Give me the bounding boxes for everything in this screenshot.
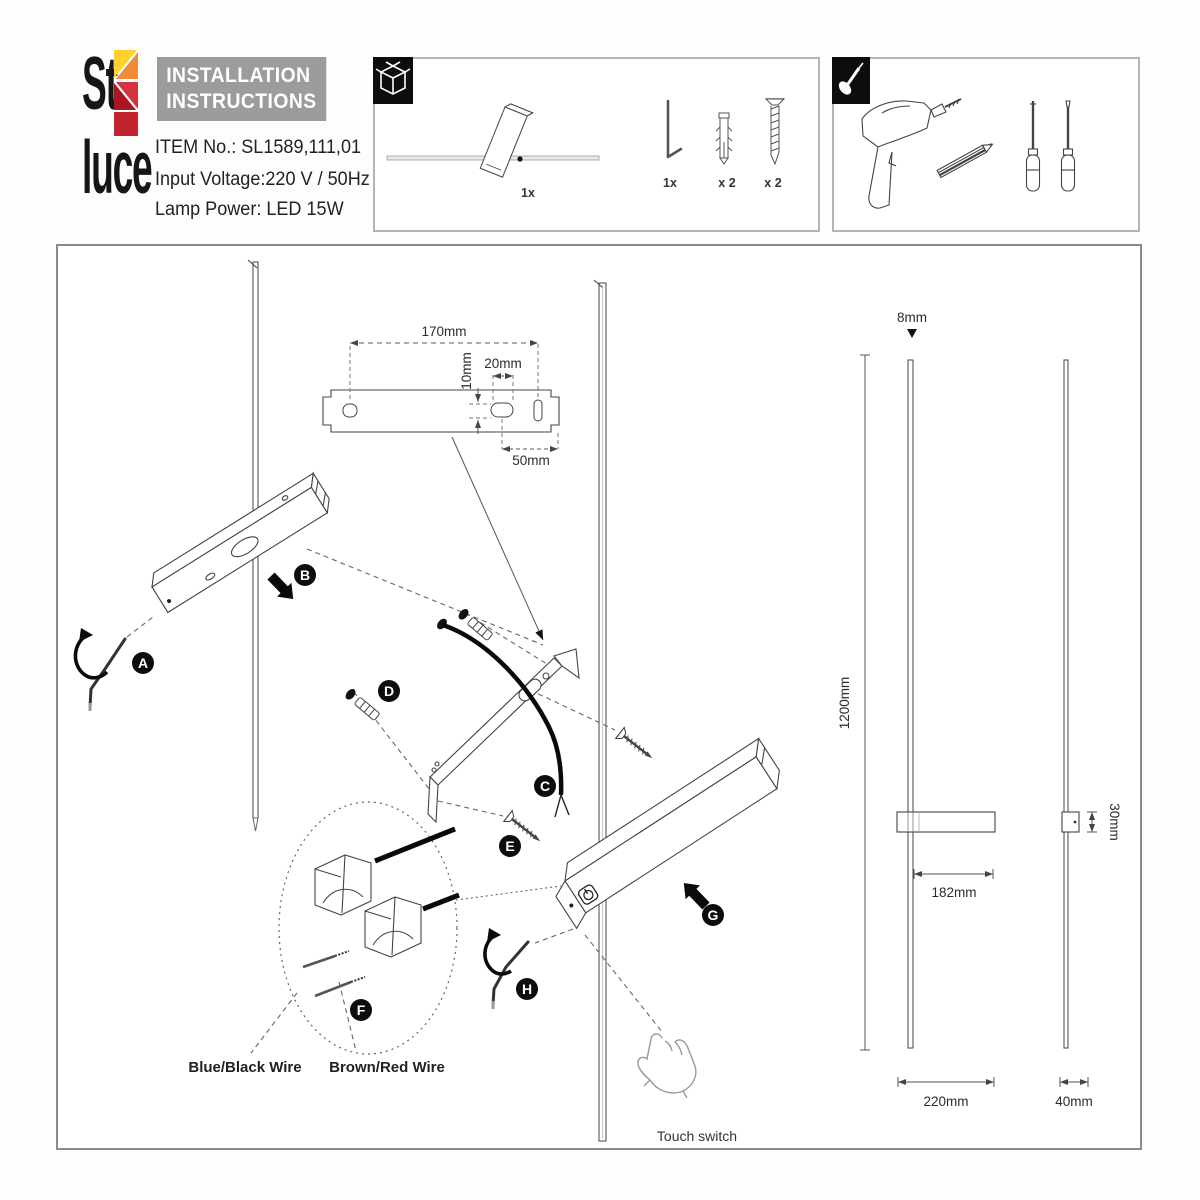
lamp-drawing: 1x xyxy=(387,102,599,200)
wall-plug-d2 xyxy=(344,687,382,721)
svg-text:H: H xyxy=(522,981,532,997)
base-width-label: 220mm xyxy=(923,1094,968,1109)
step-label-f: F xyxy=(350,999,372,1021)
lamp-power: Lamp Power: LED 15W xyxy=(155,199,344,221)
housing-step-gh: G H Touch switch xyxy=(485,739,791,1144)
allen-key-drawing: 1x xyxy=(663,101,681,190)
lamp-rod-center xyxy=(594,280,606,1141)
document-title: INSTALLATION INSTRUCTIONS xyxy=(157,57,326,121)
wall-plug-qty: x 2 xyxy=(718,176,735,190)
brand-logo-triangles-icon xyxy=(114,50,138,138)
arm-length-label: 182mm xyxy=(931,885,976,900)
package-contents-drawing: 1x 1x x 2 x 2 xyxy=(373,57,816,228)
step-label-b: B xyxy=(294,564,316,586)
drill-drawing xyxy=(862,99,961,208)
step-label-c: C xyxy=(534,775,556,797)
connector-block-1 xyxy=(315,855,371,915)
phillips-screwdriver-drawing xyxy=(1027,101,1040,191)
svg-text:F: F xyxy=(357,1002,366,1018)
svg-text:D: D xyxy=(384,683,394,699)
template-hole-height-label: 10mm xyxy=(459,352,474,390)
title-line-1: INSTALLATION xyxy=(166,63,316,89)
step-label-h: H xyxy=(516,978,538,1000)
dimension-views: 1200mm 8mm 182mm 220mm 30mm 40mm xyxy=(837,310,1122,1109)
tools-drawing xyxy=(832,57,1136,228)
template-end-offset-label: 50mm xyxy=(512,453,550,468)
step-label-d: D xyxy=(378,680,400,702)
input-wires xyxy=(303,951,365,996)
brown-red-wire-label: Brown/Red Wire xyxy=(329,1059,445,1076)
item-number: ITEM No.: SL1589,111,01 xyxy=(155,137,361,159)
touch-switch-label: Touch switch xyxy=(657,1128,737,1144)
lamp-qty: 1x xyxy=(521,186,535,200)
bracket-step-cde: D E C xyxy=(344,607,657,857)
title-line-2: INSTRUCTIONS xyxy=(166,89,316,115)
side-width-label: 40mm xyxy=(1055,1094,1093,1109)
pencil-drawing xyxy=(937,141,994,178)
wall-plug-d1 xyxy=(457,607,495,641)
rod-diameter-label: 8mm xyxy=(897,310,927,325)
main-diagram: 170mm 20mm 10mm 50mm xyxy=(57,245,1137,1145)
step-label-a: A xyxy=(132,652,154,674)
bracket-depth-label: 30mm xyxy=(1107,803,1122,841)
svg-text:A: A xyxy=(138,655,148,671)
svg-text:C: C xyxy=(540,778,550,794)
wall-plug-drawing: x 2 xyxy=(716,113,736,190)
blue-black-wire-label: Blue/Black Wire xyxy=(188,1059,301,1076)
template-width-label: 170mm xyxy=(421,324,466,339)
touch-hand-drawing xyxy=(638,1034,696,1098)
connector-block-2 xyxy=(365,897,421,957)
screw-e1 xyxy=(616,727,657,763)
screw-drawing: x 2 xyxy=(764,99,784,190)
allen-key-qty: 1x xyxy=(663,176,677,190)
screw-qty: x 2 xyxy=(764,176,781,190)
total-height-label: 1200mm xyxy=(837,677,852,730)
input-voltage: Input Voltage:220 V / 50Hz xyxy=(155,169,370,191)
flat-screwdriver-drawing xyxy=(1062,101,1075,191)
svg-text:B: B xyxy=(300,567,310,583)
template-slot-width-label: 20mm xyxy=(484,356,522,371)
svg-text:G: G xyxy=(708,907,719,923)
brand-logo-line1: St xyxy=(82,40,117,126)
step-label-e: E xyxy=(499,835,521,857)
svg-text:E: E xyxy=(505,838,514,854)
housing-step-ab: A B xyxy=(75,473,543,711)
bracket-template: 170mm 20mm 10mm 50mm xyxy=(323,324,559,640)
step-label-g: G xyxy=(702,904,724,926)
